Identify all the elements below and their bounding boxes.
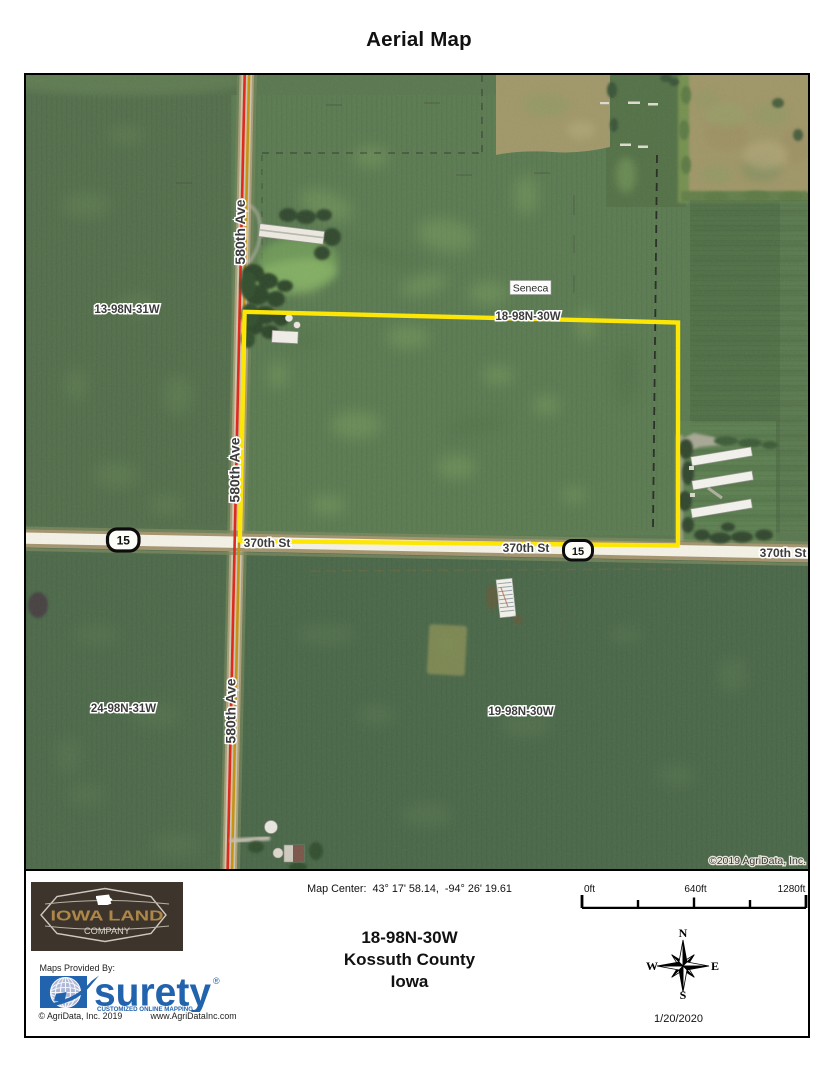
svg-text:19-98N-30W: 19-98N-30W xyxy=(488,706,553,718)
svg-text:S: S xyxy=(680,988,687,1002)
svg-text:N: N xyxy=(679,926,688,940)
svg-text:370th St: 370th St xyxy=(759,546,806,560)
svg-text:370th St: 370th St xyxy=(243,536,290,550)
svg-text:18-98N-30W: 18-98N-30W xyxy=(495,311,560,323)
svg-text:®: ® xyxy=(213,976,220,986)
svg-text:W: W xyxy=(646,959,658,973)
svg-text:15: 15 xyxy=(116,534,130,548)
svg-text:580th Ave: 580th Ave xyxy=(226,437,242,502)
svg-text:Seneca: Seneca xyxy=(512,283,548,295)
svg-text:24-98N-31W: 24-98N-31W xyxy=(90,703,155,715)
svg-text:13-98N-31W: 13-98N-31W xyxy=(94,304,159,316)
svg-text:580th Ave: 580th Ave xyxy=(232,199,248,264)
svg-text:370th St: 370th St xyxy=(502,541,549,555)
svg-text:15: 15 xyxy=(571,546,583,558)
svg-text:E: E xyxy=(711,959,719,973)
svg-text:COMPANY: COMPANY xyxy=(84,926,130,936)
svg-text:©2019 AgriData, Inc.: ©2019 AgriData, Inc. xyxy=(708,855,805,867)
svg-text:IOWA LAND: IOWA LAND xyxy=(51,908,164,925)
svg-text:580th Ave: 580th Ave xyxy=(222,678,238,743)
